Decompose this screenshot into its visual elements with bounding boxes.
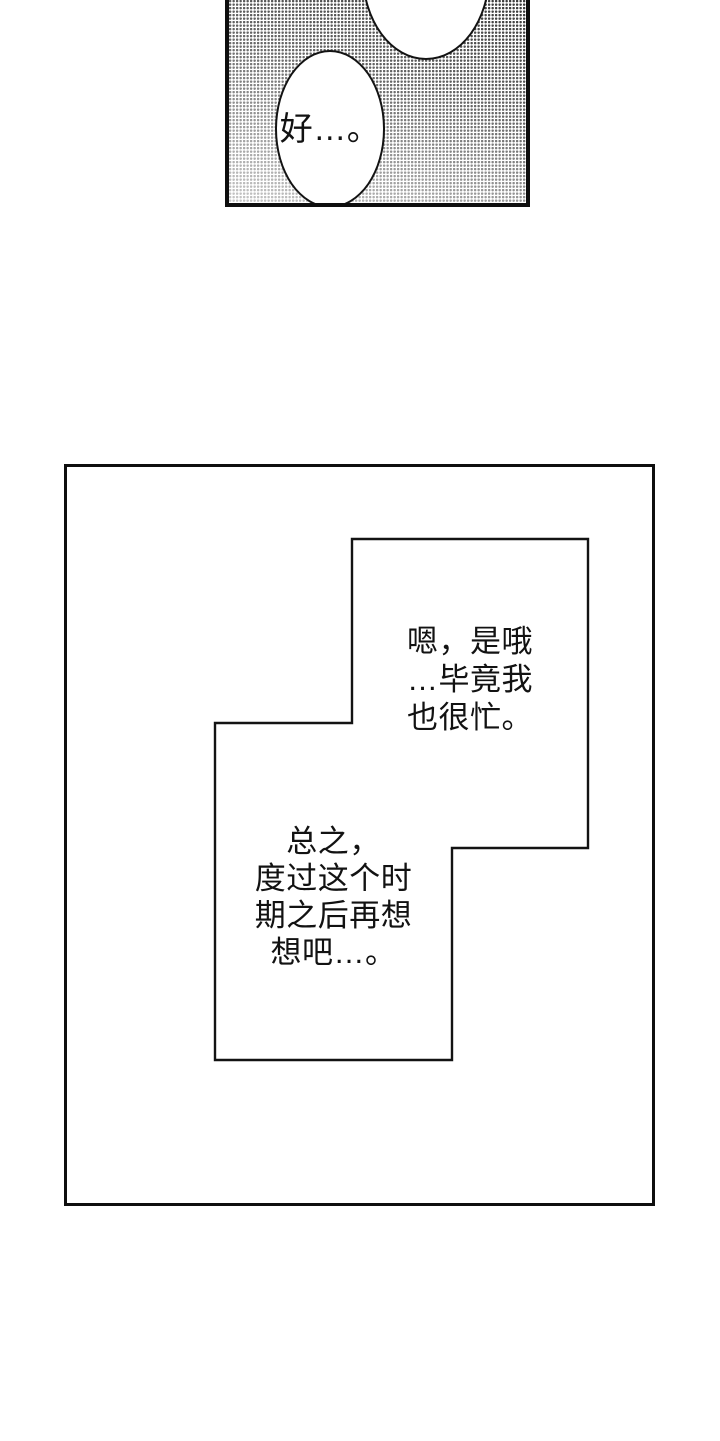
speech-bubble-ok-text: 好…。 [280,111,381,147]
manga-panel-top: 好…。 [225,0,530,207]
speech-bubble-cropped [362,0,490,60]
dialogue-line: 嗯，是哦 [407,623,533,661]
speech-bubble-ok: 好…。 [275,50,385,207]
comic-page: 好…。 嗯，是哦 …毕竟我 也很忙。 总之， 度过这个时 期之后再想 想吧…。 [0,0,720,1441]
dialogue-line: 期之后再想 [255,897,413,934]
dialogue-line: 度过这个时 [255,860,413,897]
dialogue-block-2: 总之， 度过这个时 期之后再想 想吧…。 [215,723,452,1060]
dialogue-line: 想吧…。 [271,934,397,971]
dialogue-line: …毕竟我 [407,661,533,699]
dialogue-line: 总之， [286,823,381,860]
